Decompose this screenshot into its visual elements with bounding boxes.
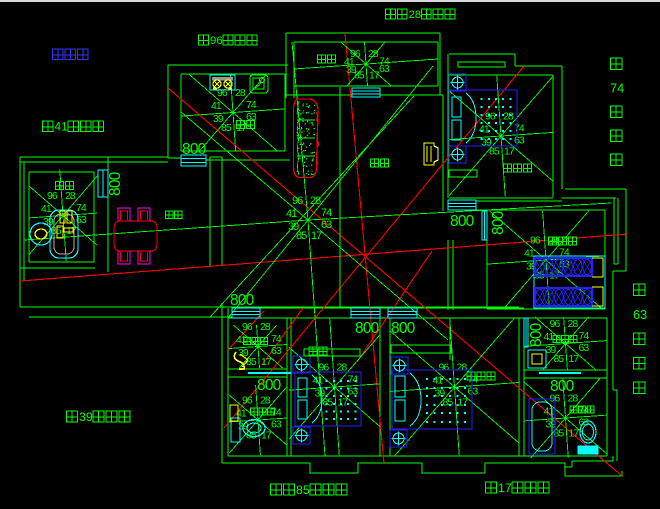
svg-text:96: 96 xyxy=(292,195,303,207)
svg-text:63: 63 xyxy=(514,134,525,146)
svg-text:28: 28 xyxy=(235,87,246,99)
svg-text:96: 96 xyxy=(242,394,253,406)
svg-text:28: 28 xyxy=(568,318,579,330)
svg-text:800: 800 xyxy=(391,320,416,337)
svg-text:28: 28 xyxy=(457,361,468,373)
svg-text:17: 17 xyxy=(66,225,77,237)
svg-text:17: 17 xyxy=(369,70,380,82)
svg-text:85: 85 xyxy=(443,396,454,408)
svg-text:74: 74 xyxy=(321,207,332,219)
svg-text:41: 41 xyxy=(479,123,490,135)
svg-text:800: 800 xyxy=(450,213,475,230)
svg-text:74: 74 xyxy=(514,122,525,134)
svg-text:41: 41 xyxy=(313,374,324,386)
svg-text:74: 74 xyxy=(271,333,282,345)
svg-text:28: 28 xyxy=(260,394,271,406)
svg-text:74: 74 xyxy=(579,330,590,342)
svg-text:63: 63 xyxy=(633,307,647,322)
svg-text:63: 63 xyxy=(321,219,332,231)
svg-text:74: 74 xyxy=(246,99,257,111)
svg-text:17: 17 xyxy=(569,427,580,439)
svg-text:96: 96 xyxy=(439,361,450,373)
svg-text:41: 41 xyxy=(211,100,222,112)
svg-text:96: 96 xyxy=(530,234,541,246)
svg-text:28: 28 xyxy=(65,190,76,202)
svg-text:800: 800 xyxy=(550,378,575,395)
svg-text:800: 800 xyxy=(182,141,207,158)
svg-text:800: 800 xyxy=(355,320,380,337)
svg-text:800: 800 xyxy=(257,377,282,394)
svg-text:96: 96 xyxy=(217,87,228,99)
svg-text:96: 96 xyxy=(485,110,496,122)
svg-text:96: 96 xyxy=(242,321,253,333)
svg-text:800: 800 xyxy=(528,322,545,347)
svg-text:41: 41 xyxy=(524,247,535,259)
svg-text:28: 28 xyxy=(260,321,271,333)
svg-text:17: 17 xyxy=(504,145,515,157)
svg-text:17: 17 xyxy=(498,481,512,495)
svg-text:63: 63 xyxy=(379,63,390,75)
svg-text:17: 17 xyxy=(311,230,322,242)
svg-text:800: 800 xyxy=(230,292,255,309)
svg-text:800: 800 xyxy=(107,171,124,196)
svg-text:41: 41 xyxy=(433,374,444,386)
svg-text:28: 28 xyxy=(548,234,559,246)
svg-text:63: 63 xyxy=(271,345,282,357)
svg-text:85: 85 xyxy=(246,356,257,368)
svg-text:85: 85 xyxy=(221,122,232,134)
svg-text:28: 28 xyxy=(503,110,514,122)
svg-text:96: 96 xyxy=(47,190,58,202)
svg-text:63: 63 xyxy=(579,342,590,354)
svg-text:96: 96 xyxy=(550,318,561,330)
svg-text:74: 74 xyxy=(348,373,359,385)
svg-text:85: 85 xyxy=(554,353,565,365)
svg-text:17: 17 xyxy=(236,122,247,134)
svg-text:74: 74 xyxy=(76,202,87,214)
svg-text:85: 85 xyxy=(354,70,365,82)
svg-text:41: 41 xyxy=(41,203,52,215)
svg-text:85: 85 xyxy=(489,145,500,157)
svg-text:17: 17 xyxy=(338,396,349,408)
svg-text:17: 17 xyxy=(261,429,272,441)
svg-text:63: 63 xyxy=(271,418,282,430)
svg-text:41: 41 xyxy=(55,120,69,134)
svg-text:17: 17 xyxy=(458,396,469,408)
svg-text:28: 28 xyxy=(409,9,421,21)
svg-text:17: 17 xyxy=(569,353,580,365)
svg-text:74: 74 xyxy=(559,246,570,258)
svg-text:85: 85 xyxy=(296,230,307,242)
svg-text:41: 41 xyxy=(544,405,555,417)
svg-text:85: 85 xyxy=(323,396,334,408)
svg-text:41: 41 xyxy=(286,208,297,220)
svg-text:74: 74 xyxy=(610,80,624,95)
svg-text:85: 85 xyxy=(296,483,310,497)
svg-text:28: 28 xyxy=(368,48,379,60)
svg-text:39: 39 xyxy=(79,410,93,424)
svg-text:17: 17 xyxy=(261,356,272,368)
svg-text:63: 63 xyxy=(468,385,479,397)
svg-text:63: 63 xyxy=(246,111,257,123)
svg-text:28: 28 xyxy=(310,195,321,207)
svg-text:96: 96 xyxy=(210,35,223,47)
svg-text:800: 800 xyxy=(490,210,507,235)
